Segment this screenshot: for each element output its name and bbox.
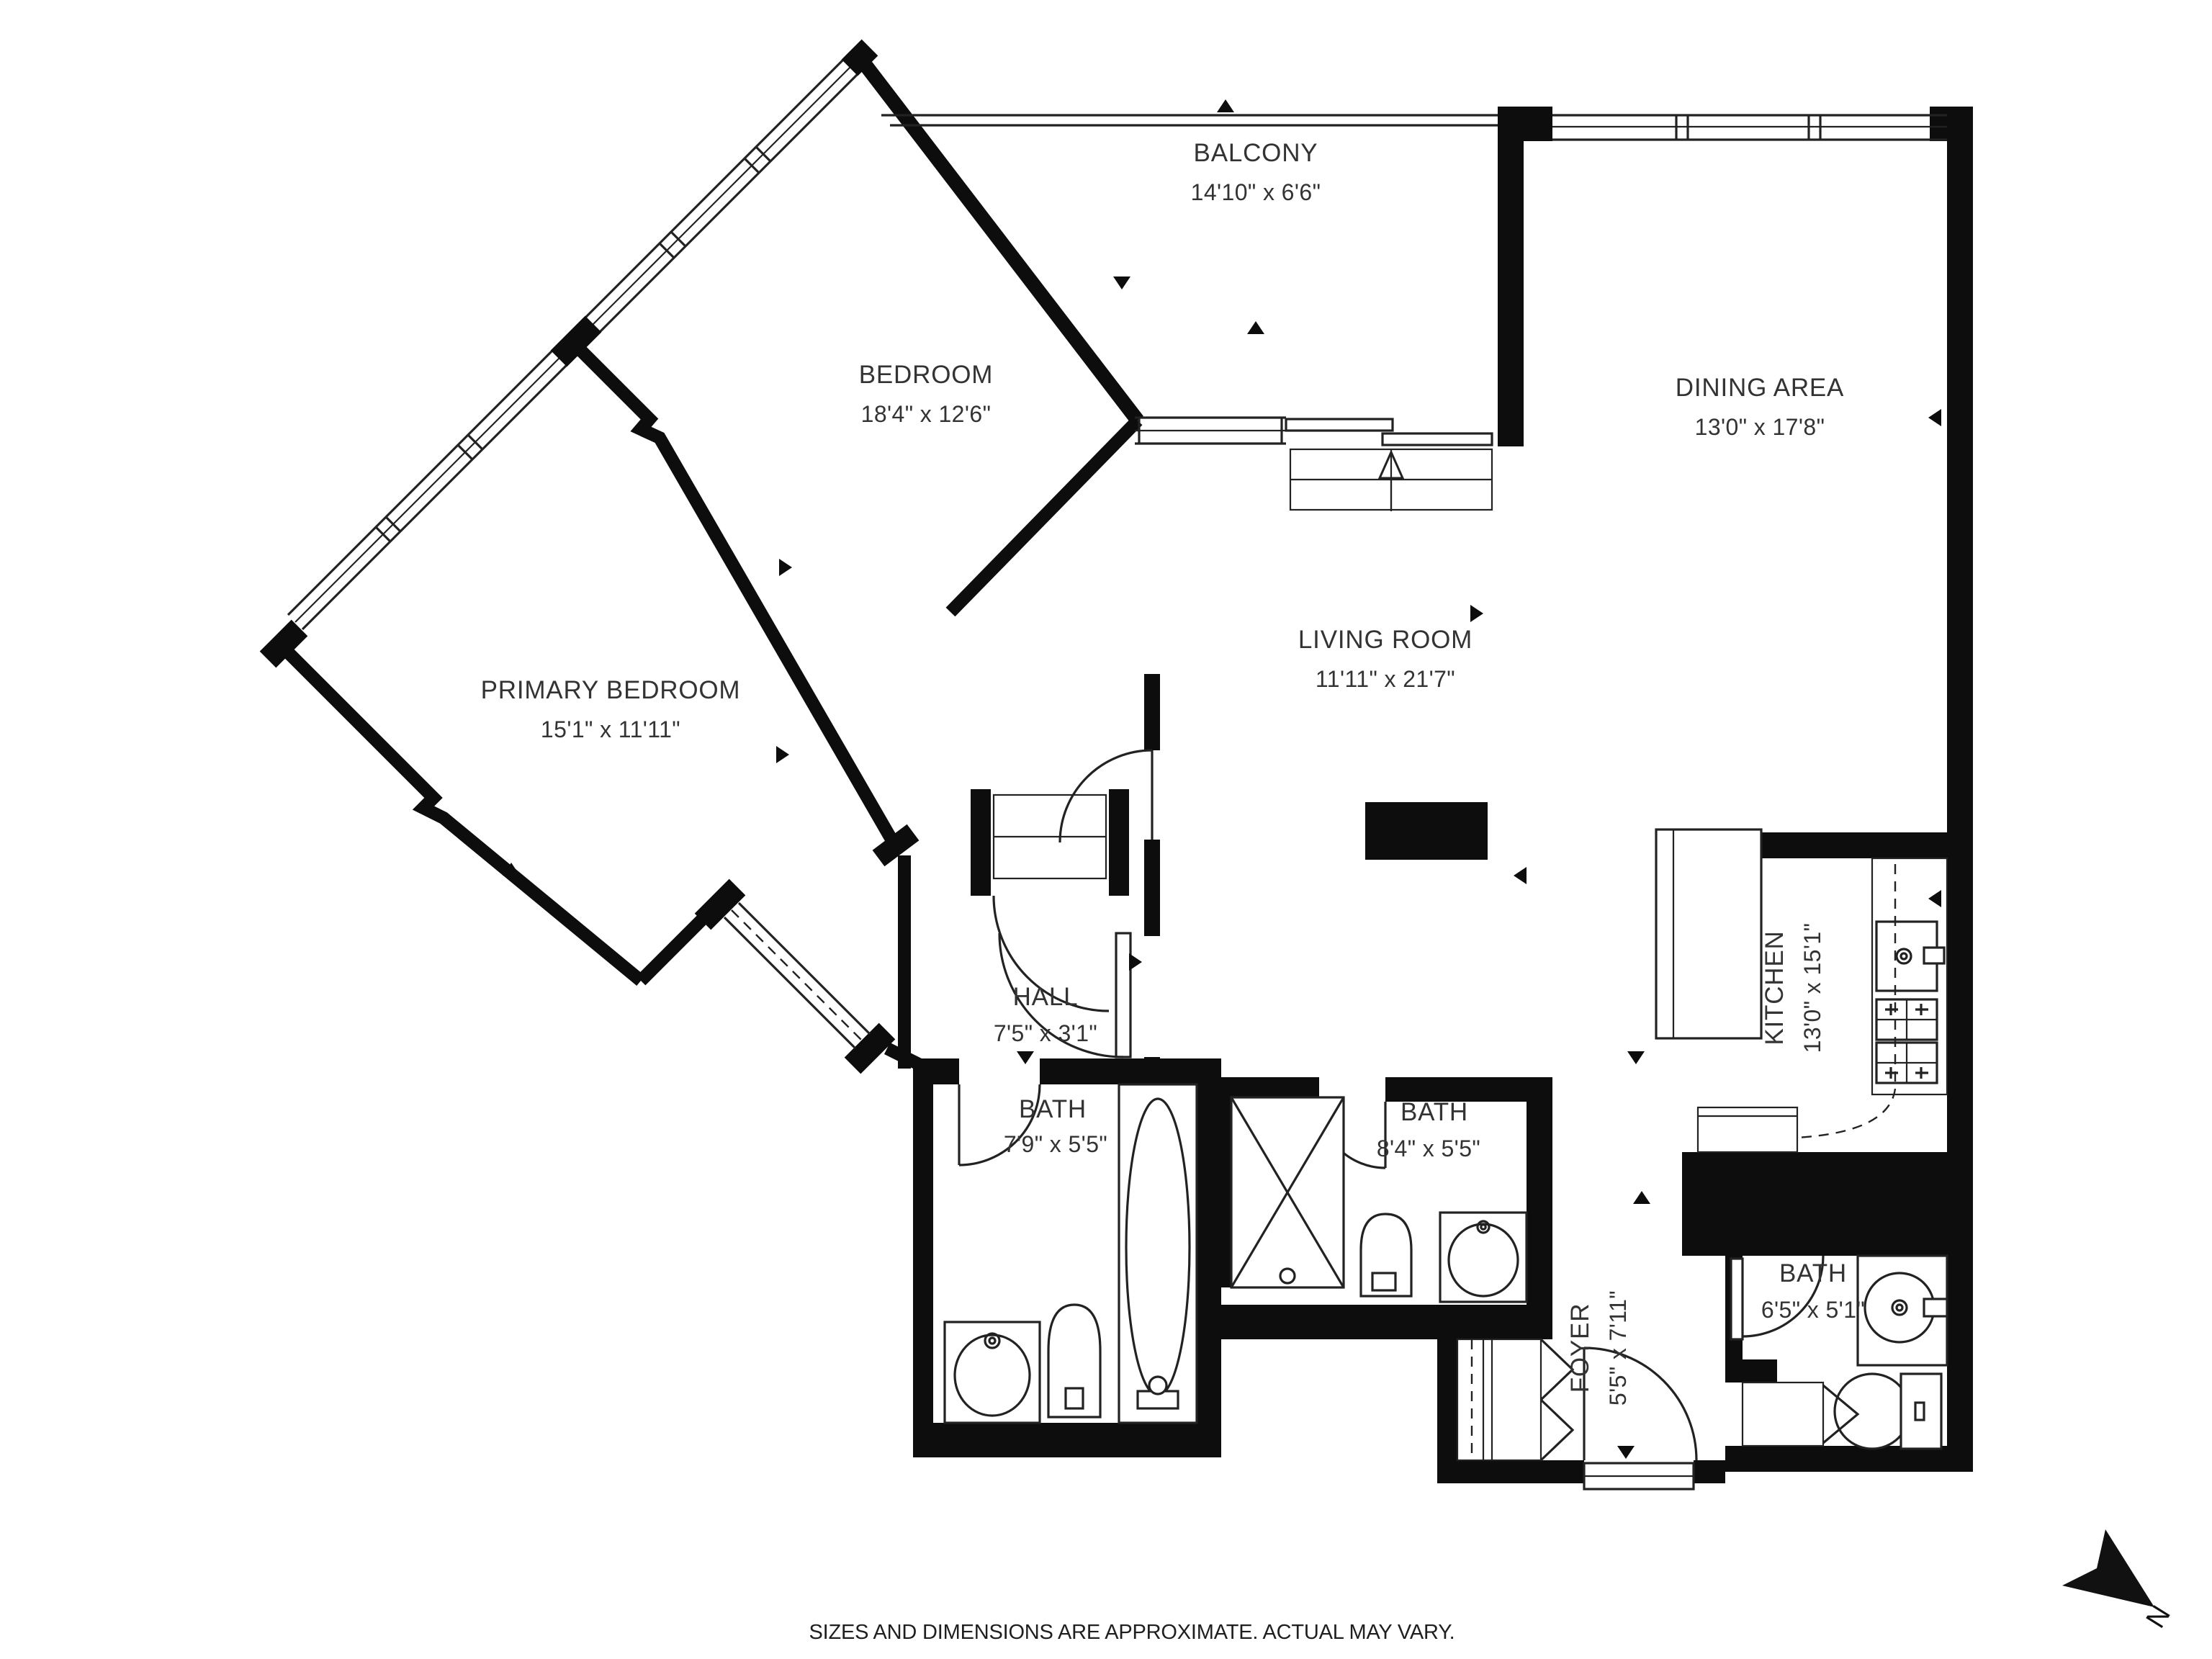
room-label-hall: HALL [1013, 983, 1079, 1011]
kitchen-peninsula [1656, 829, 1761, 1038]
room-dims-balcony: 14'10" x 6'6" [1191, 179, 1321, 205]
room-label-bedroom: BEDROOM [859, 361, 993, 389]
wall-junction-caps [268, 48, 913, 1066]
room-dims-foyer: 5'5" x 7'11" [1605, 1290, 1631, 1406]
room-dims-living: 11'11" x 21'7" [1316, 666, 1455, 692]
hall-door-leaf [1116, 933, 1130, 1057]
floor-plan-canvas: BALCONY 14'10" x 6'6" BEDROOM 18'4" x 12… [0, 0, 2212, 1659]
disclaimer-text: SIZES AND DIMENSIONS ARE APPROXIMATE. AC… [809, 1621, 1455, 1644]
balcony-railing [881, 115, 1498, 125]
room-dims-bath2: 8'4" x 5'5" [1377, 1136, 1480, 1161]
room-label-balcony: BALCONY [1194, 139, 1318, 167]
room-dims-primary: 15'1" x 11'11" [541, 716, 680, 742]
room-label-bath3: BATH [1779, 1259, 1847, 1287]
floor-plan-svg: BALCONY 14'10" x 6'6" BEDROOM 18'4" x 12… [0, 0, 2212, 1659]
foyer-closet [1457, 1339, 1573, 1460]
bath3-closet [1743, 1382, 1823, 1446]
room-label-bath2: BATH [1401, 1098, 1468, 1126]
dining-window-band [1552, 115, 1947, 140]
room-label-bath1: BATH [1019, 1095, 1087, 1123]
stove-icon [1876, 999, 1937, 1083]
room-dims-bath1: 7'9" x 5'5" [1004, 1131, 1107, 1157]
exterior-walls [284, 58, 1152, 1087]
room-label-dining: DINING AREA [1676, 374, 1844, 402]
bath3-door-leaf [1731, 1259, 1743, 1339]
room-dims-kitchen: 13'0" x 15'1" [1799, 923, 1825, 1053]
bedroom-closet [994, 795, 1106, 878]
room-dims-dining: 13'0" x 17'8" [1695, 414, 1825, 440]
closet-bifold-icon [1541, 1400, 1573, 1460]
primary-closet-sliding-doors [724, 903, 870, 1048]
window-band-primary [288, 341, 576, 629]
room-label-foyer: FOYER [1566, 1303, 1594, 1393]
room-label-living: LIVING ROOM [1298, 626, 1473, 654]
compass-north-label: N [2141, 1601, 2177, 1634]
room-dims-bath3: 6'5" x 5'1" [1761, 1297, 1865, 1323]
toilet-icon [1835, 1374, 1910, 1449]
room-label-primary: PRIMARY BEDROOM [481, 676, 741, 704]
sink-icon [1449, 1224, 1518, 1296]
room-dims-bedroom: 18'4" x 12'6" [861, 401, 992, 427]
compass: N [2062, 1529, 2177, 1633]
room-label-kitchen: KITCHEN [1761, 930, 1789, 1045]
faucet-icon [1924, 1299, 1947, 1316]
bath2-fixtures [1231, 1097, 1527, 1302]
tub-faucet-icon [1149, 1377, 1166, 1394]
north-arrow-icon [2062, 1529, 2154, 1607]
room-dims-hall: 7'5" x 3'1" [994, 1020, 1097, 1046]
window-band-bedroom [569, 50, 867, 349]
balcony-bottom-window-and-slider [1135, 418, 1492, 511]
shower-drain-icon [1280, 1269, 1295, 1283]
kitchen-cabinet [1698, 1107, 1797, 1152]
